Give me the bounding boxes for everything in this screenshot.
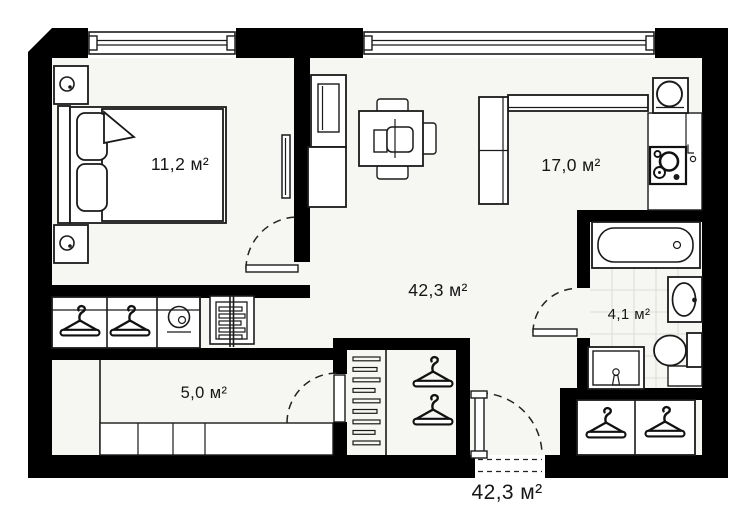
chair [377, 165, 408, 179]
sofa-back [508, 95, 648, 111]
pillow [77, 113, 107, 160]
living-window [363, 28, 655, 58]
area-label-bathroom: 4,1 м² [608, 306, 651, 323]
bathtub [592, 222, 700, 268]
bowl [654, 336, 686, 366]
bathroom-north-wall [577, 210, 702, 222]
kitchen-sink [653, 78, 688, 113]
nightstand [54, 225, 88, 263]
area-label-hall: 42,3 м² [408, 280, 468, 300]
door-leaf [533, 329, 577, 336]
door-leaf [475, 397, 484, 453]
tv [318, 84, 339, 132]
floor-plan: 11,2 м² 17,0 м² 42,3 м² 4,1 м² 5,0 м² 42… [0, 0, 756, 506]
tv-stand [308, 75, 346, 207]
bedroom-south-wall [28, 285, 310, 298]
faucet [692, 298, 697, 303]
hall-wardrobe [52, 297, 200, 348]
door-leaf [246, 265, 298, 272]
washing-machine [588, 347, 644, 389]
entry-hall-wall [28, 348, 345, 360]
table-object [387, 127, 413, 152]
bedroom-window [88, 28, 236, 58]
wall-mirror [282, 135, 290, 198]
area-label-entry: 5,0 м² [181, 384, 228, 402]
burner [674, 174, 680, 180]
cooktop [650, 147, 686, 184]
nightstand [54, 66, 88, 104]
door-leaf [334, 375, 345, 422]
pillow [77, 164, 107, 211]
cabinet [308, 147, 346, 207]
bench-cabinet [100, 423, 333, 455]
area-label-bedroom: 11,2 м² [151, 154, 209, 174]
headboard [58, 106, 70, 223]
area-label-living: 17,0 м² [541, 155, 601, 175]
utility-cabinet [210, 296, 254, 347]
washbasin [668, 277, 702, 322]
total-area-label: 42,3 м² [472, 481, 543, 504]
hall-closet [577, 400, 695, 455]
closet-east-wall [456, 338, 470, 455]
floor-plan-drawing: 11,2 м² 17,0 м² 42,3 м² 4,1 м² 5,0 м² 42… [0, 0, 756, 506]
cistern [687, 333, 702, 367]
closet-north-wall [333, 338, 467, 350]
chair-tucked [374, 130, 387, 152]
